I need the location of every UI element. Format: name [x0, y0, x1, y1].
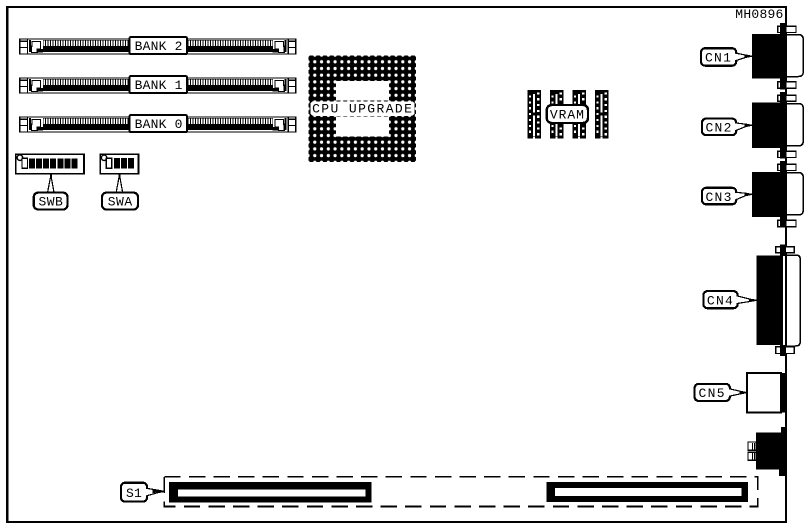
- svg-text:BANK 2: BANK 2: [135, 39, 183, 54]
- svg-text:SWB: SWB: [38, 194, 63, 209]
- svg-text:BANK 1: BANK 1: [135, 78, 183, 93]
- svg-text:VRAM: VRAM: [550, 107, 585, 122]
- svg-text:CN1: CN1: [705, 51, 732, 66]
- svg-text:CN2: CN2: [705, 121, 732, 136]
- svg-text:CN4: CN4: [707, 293, 734, 308]
- svg-text:MH0896: MH0896: [735, 7, 783, 22]
- svg-text:S1: S1: [126, 486, 142, 501]
- svg-text:CN3: CN3: [705, 190, 732, 205]
- svg-text:CPU UPGRADE: CPU UPGRADE: [312, 102, 413, 117]
- svg-text:SWA: SWA: [108, 194, 133, 209]
- svg-text:CN5: CN5: [699, 386, 726, 401]
- svg-text:BANK 0: BANK 0: [135, 117, 183, 132]
